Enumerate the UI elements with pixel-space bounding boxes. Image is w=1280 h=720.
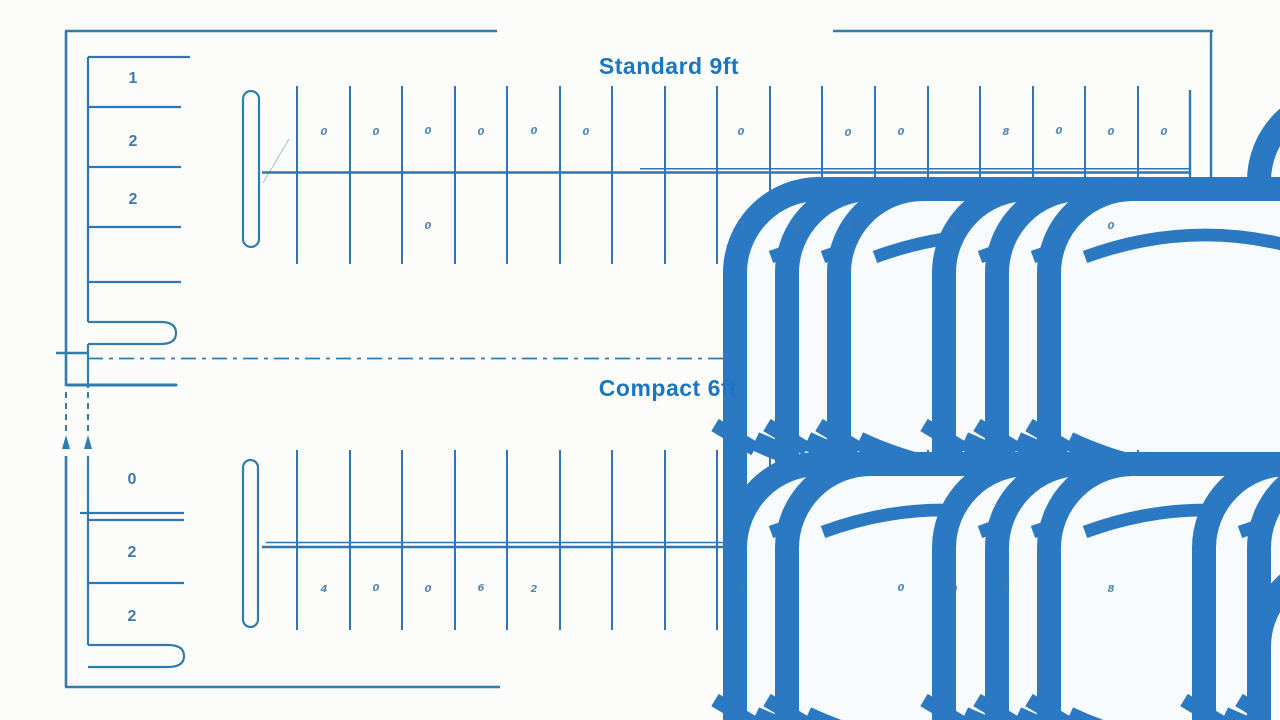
left-column-bottom: 0 2 2 bbox=[80, 471, 184, 667]
stall-mark: 0 bbox=[478, 127, 485, 138]
stall-mark: 6 bbox=[1056, 220, 1063, 231]
stall-mark: 0 bbox=[1108, 221, 1115, 232]
stall-mark: 4 bbox=[792, 221, 800, 232]
stall-mark: 4 bbox=[737, 584, 745, 595]
standard-left-island bbox=[243, 91, 259, 247]
stall-mark: 0 bbox=[321, 127, 328, 138]
stall-mark: 9 bbox=[1003, 583, 1010, 594]
stall-mark: 4 bbox=[320, 584, 328, 595]
stall-mark: 0 bbox=[1161, 127, 1168, 138]
stall-mark: 3 bbox=[845, 220, 852, 231]
stall-mark: 8 bbox=[1003, 127, 1010, 138]
sketch-scratch-line bbox=[263, 139, 289, 183]
left-column-top: 1 2 2 bbox=[88, 0, 764, 322]
stall-mark: 0 bbox=[425, 126, 432, 137]
stall-mark: 0 bbox=[898, 583, 905, 594]
stall-count-label: 2 bbox=[129, 191, 138, 208]
standard-top-row-marks: 0 0 0 0 0 0 0 0 0 8 0 0 0 bbox=[321, 126, 1168, 139]
left-column-top-lines bbox=[88, 57, 190, 322]
compact-top-row-cars bbox=[715, 464, 1280, 720]
compact-left-island bbox=[243, 460, 258, 627]
stall-mark: 0 bbox=[951, 584, 958, 595]
stall-count-label: 2 bbox=[129, 133, 138, 150]
bottom-island bbox=[88, 645, 184, 667]
mid-island bbox=[88, 322, 176, 344]
lane-dashed-lines bbox=[66, 392, 88, 434]
compact-section-title: Compact 6ft bbox=[599, 375, 737, 402]
up-arrowhead-icon bbox=[62, 435, 92, 449]
stall-mark: 0 bbox=[373, 583, 380, 594]
stall-mark: 0 bbox=[845, 128, 852, 139]
stall-mark: 1 bbox=[951, 221, 958, 232]
blueprint-drawing: 1 2 2 0 2 2 bbox=[0, 0, 1280, 720]
left-lane-markings bbox=[56, 322, 176, 645]
blueprint-canvas: 1 2 2 0 2 2 bbox=[0, 0, 1280, 720]
stall-mark: 0 bbox=[373, 127, 380, 138]
stall-mark: 6 bbox=[478, 583, 485, 594]
stall-mark: 0 bbox=[425, 221, 432, 232]
stall-count-label: 2 bbox=[128, 608, 137, 625]
stall-mark: 0 bbox=[1056, 126, 1063, 137]
stall-count-label: 1 bbox=[129, 70, 138, 87]
standard-section-title: Standard 9ft bbox=[599, 53, 739, 80]
stall-mark: 0 bbox=[425, 584, 432, 595]
stall-mark: 2 bbox=[531, 584, 538, 595]
stall-mark: 0 bbox=[898, 127, 905, 138]
compact-section: 4 0 0 6 2 4 0 0 9 8 bbox=[243, 450, 1280, 720]
stall-count-label: 0 bbox=[128, 471, 137, 488]
stall-mark: 0 bbox=[1108, 127, 1115, 138]
stall-mark: 8 bbox=[1108, 584, 1115, 595]
stall-mark: 3 bbox=[738, 220, 745, 231]
stall-count-label: 2 bbox=[128, 544, 137, 561]
stall-mark: 0 bbox=[738, 127, 745, 138]
stall-mark: 0 bbox=[531, 126, 538, 137]
stall-mark: 0 bbox=[583, 127, 590, 138]
